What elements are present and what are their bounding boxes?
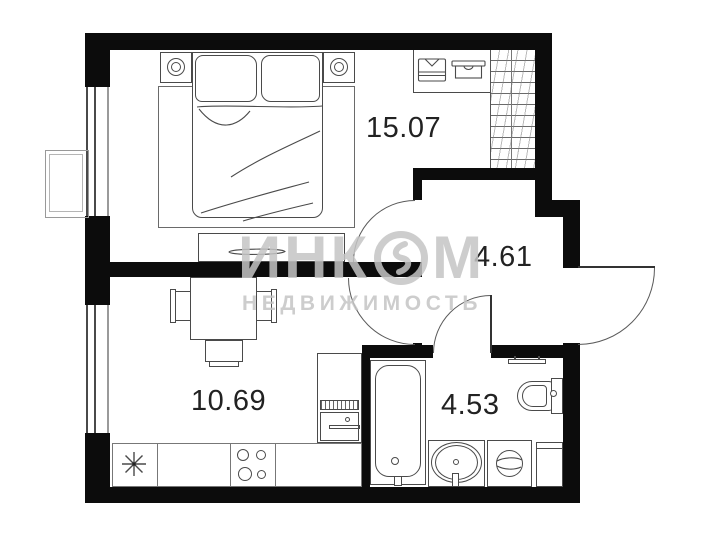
burner-3 — [238, 467, 252, 481]
floor-plan: 15.07 4.61 10.69 4.53 ИНК М НЕДВИЖИМОСТЬ — [0, 0, 701, 538]
burner-1 — [237, 449, 249, 461]
lamp-left-inner — [171, 62, 181, 72]
pillow-right — [261, 55, 320, 102]
balcony-box — [45, 150, 89, 218]
wall-bathroom-left — [362, 345, 370, 487]
oven-handle — [329, 425, 360, 429]
closet-divider — [511, 50, 512, 168]
toilet-button — [550, 390, 557, 397]
wall-bathroom-top-left — [362, 345, 433, 358]
hallway-area-label: 4.61 — [474, 241, 532, 274]
oven-knob — [345, 417, 350, 422]
counter-divider-2 — [230, 443, 231, 487]
toilet-bowl-inner — [522, 385, 547, 407]
closet-hatch — [490, 50, 535, 168]
kitchen-area-label: 10.69 — [191, 385, 266, 418]
window-living — [85, 305, 110, 433]
chair-bottom — [205, 340, 243, 362]
wall-left-middle — [85, 216, 110, 305]
chair-left — [175, 291, 191, 321]
bathroom-area-label: 4.53 — [441, 389, 499, 422]
wall-top — [85, 33, 552, 50]
kitchen-counter — [112, 443, 362, 487]
chair-bottom-back — [209, 361, 239, 367]
basin-tap — [452, 473, 459, 487]
wall-stub-bedroom-door — [413, 168, 422, 200]
vent-grille — [320, 400, 359, 410]
burner-4 — [257, 470, 266, 479]
wall-left-upper — [85, 33, 110, 87]
corner-cabinet-line — [536, 448, 563, 449]
wardrobe-shelf — [413, 50, 491, 93]
towel-rail-tick-1 — [514, 356, 516, 360]
lamp-right-inner — [334, 62, 344, 72]
wall-right-mid — [563, 217, 580, 268]
wall-right-low — [563, 343, 580, 503]
wall-bedroom-living — [110, 262, 422, 277]
counter-divider-3 — [275, 443, 276, 487]
wall-bottom — [85, 487, 580, 503]
wall-right-top — [535, 50, 552, 217]
wall-closet-hall — [415, 168, 535, 180]
wall-bathroom-top-right — [491, 345, 563, 358]
chair-right-back — [271, 289, 277, 323]
wall-right-step — [535, 200, 580, 217]
bathroom-door-leaf — [490, 295, 492, 353]
burner-2 — [256, 450, 266, 460]
washer-drum — [496, 450, 523, 477]
bedroom-area-label: 15.07 — [366, 112, 441, 145]
tv-stand — [198, 233, 345, 262]
bathtub-drain — [391, 457, 399, 465]
dining-table — [190, 277, 257, 340]
basin-drain — [453, 459, 459, 465]
counter-divider-1 — [157, 443, 158, 487]
pillow-left — [195, 55, 257, 102]
towel-rail-tick-2 — [538, 356, 540, 360]
bathtub-tap — [394, 476, 402, 486]
chair-right — [256, 291, 272, 321]
entrance-door-leaf — [578, 266, 655, 268]
